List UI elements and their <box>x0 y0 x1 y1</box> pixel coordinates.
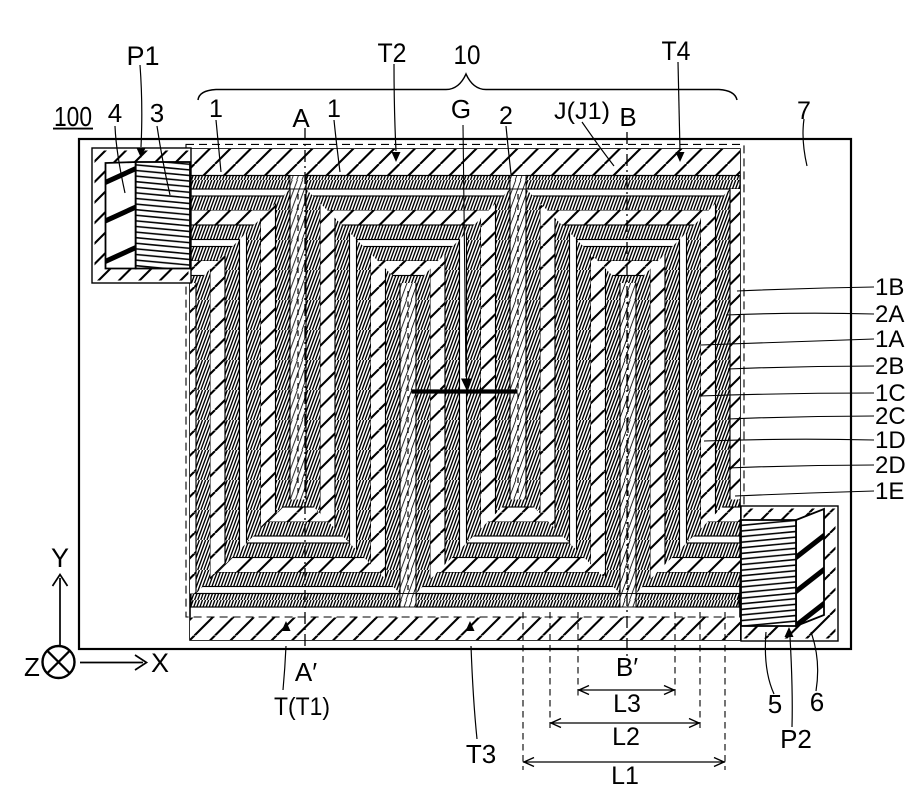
svg-text:B′: B′ <box>616 652 638 682</box>
svg-text:T4: T4 <box>662 36 691 66</box>
svg-text:1D: 1D <box>875 427 906 454</box>
svg-text:100: 100 <box>54 101 92 132</box>
svg-text:T2: T2 <box>378 38 407 68</box>
svg-text:6: 6 <box>810 687 824 717</box>
svg-text:P1: P1 <box>126 41 159 71</box>
svg-text:2A: 2A <box>875 301 904 328</box>
svg-text:1E: 1E <box>875 478 904 505</box>
svg-text:4: 4 <box>108 98 122 128</box>
svg-text:G: G <box>451 94 471 124</box>
svg-text:B: B <box>619 102 636 132</box>
svg-text:L3: L3 <box>613 690 641 718</box>
svg-text:5: 5 <box>768 689 782 719</box>
svg-text:T(T1): T(T1) <box>274 693 330 721</box>
svg-text:1: 1 <box>327 95 341 123</box>
svg-text:7: 7 <box>797 97 811 125</box>
svg-text:1B: 1B <box>875 274 904 301</box>
svg-text:2: 2 <box>499 102 513 130</box>
svg-text:Z: Z <box>24 652 40 682</box>
svg-text:L2: L2 <box>612 723 640 751</box>
svg-text:J(J1): J(J1) <box>554 98 610 125</box>
svg-text:3: 3 <box>150 98 164 128</box>
svg-text:2D: 2D <box>875 452 906 479</box>
svg-text:1A: 1A <box>875 326 904 353</box>
svg-text:X: X <box>151 648 169 678</box>
svg-text:2C: 2C <box>875 403 906 430</box>
svg-text:P2: P2 <box>780 724 812 754</box>
svg-text:T3: T3 <box>466 739 496 769</box>
svg-text:10: 10 <box>454 40 481 70</box>
svg-text:A′: A′ <box>295 657 317 687</box>
svg-text:2B: 2B <box>875 353 904 380</box>
svg-text:L1: L1 <box>611 762 639 790</box>
svg-text:1: 1 <box>209 95 223 123</box>
svg-text:Y: Y <box>51 543 69 573</box>
svg-text:A: A <box>292 103 310 133</box>
